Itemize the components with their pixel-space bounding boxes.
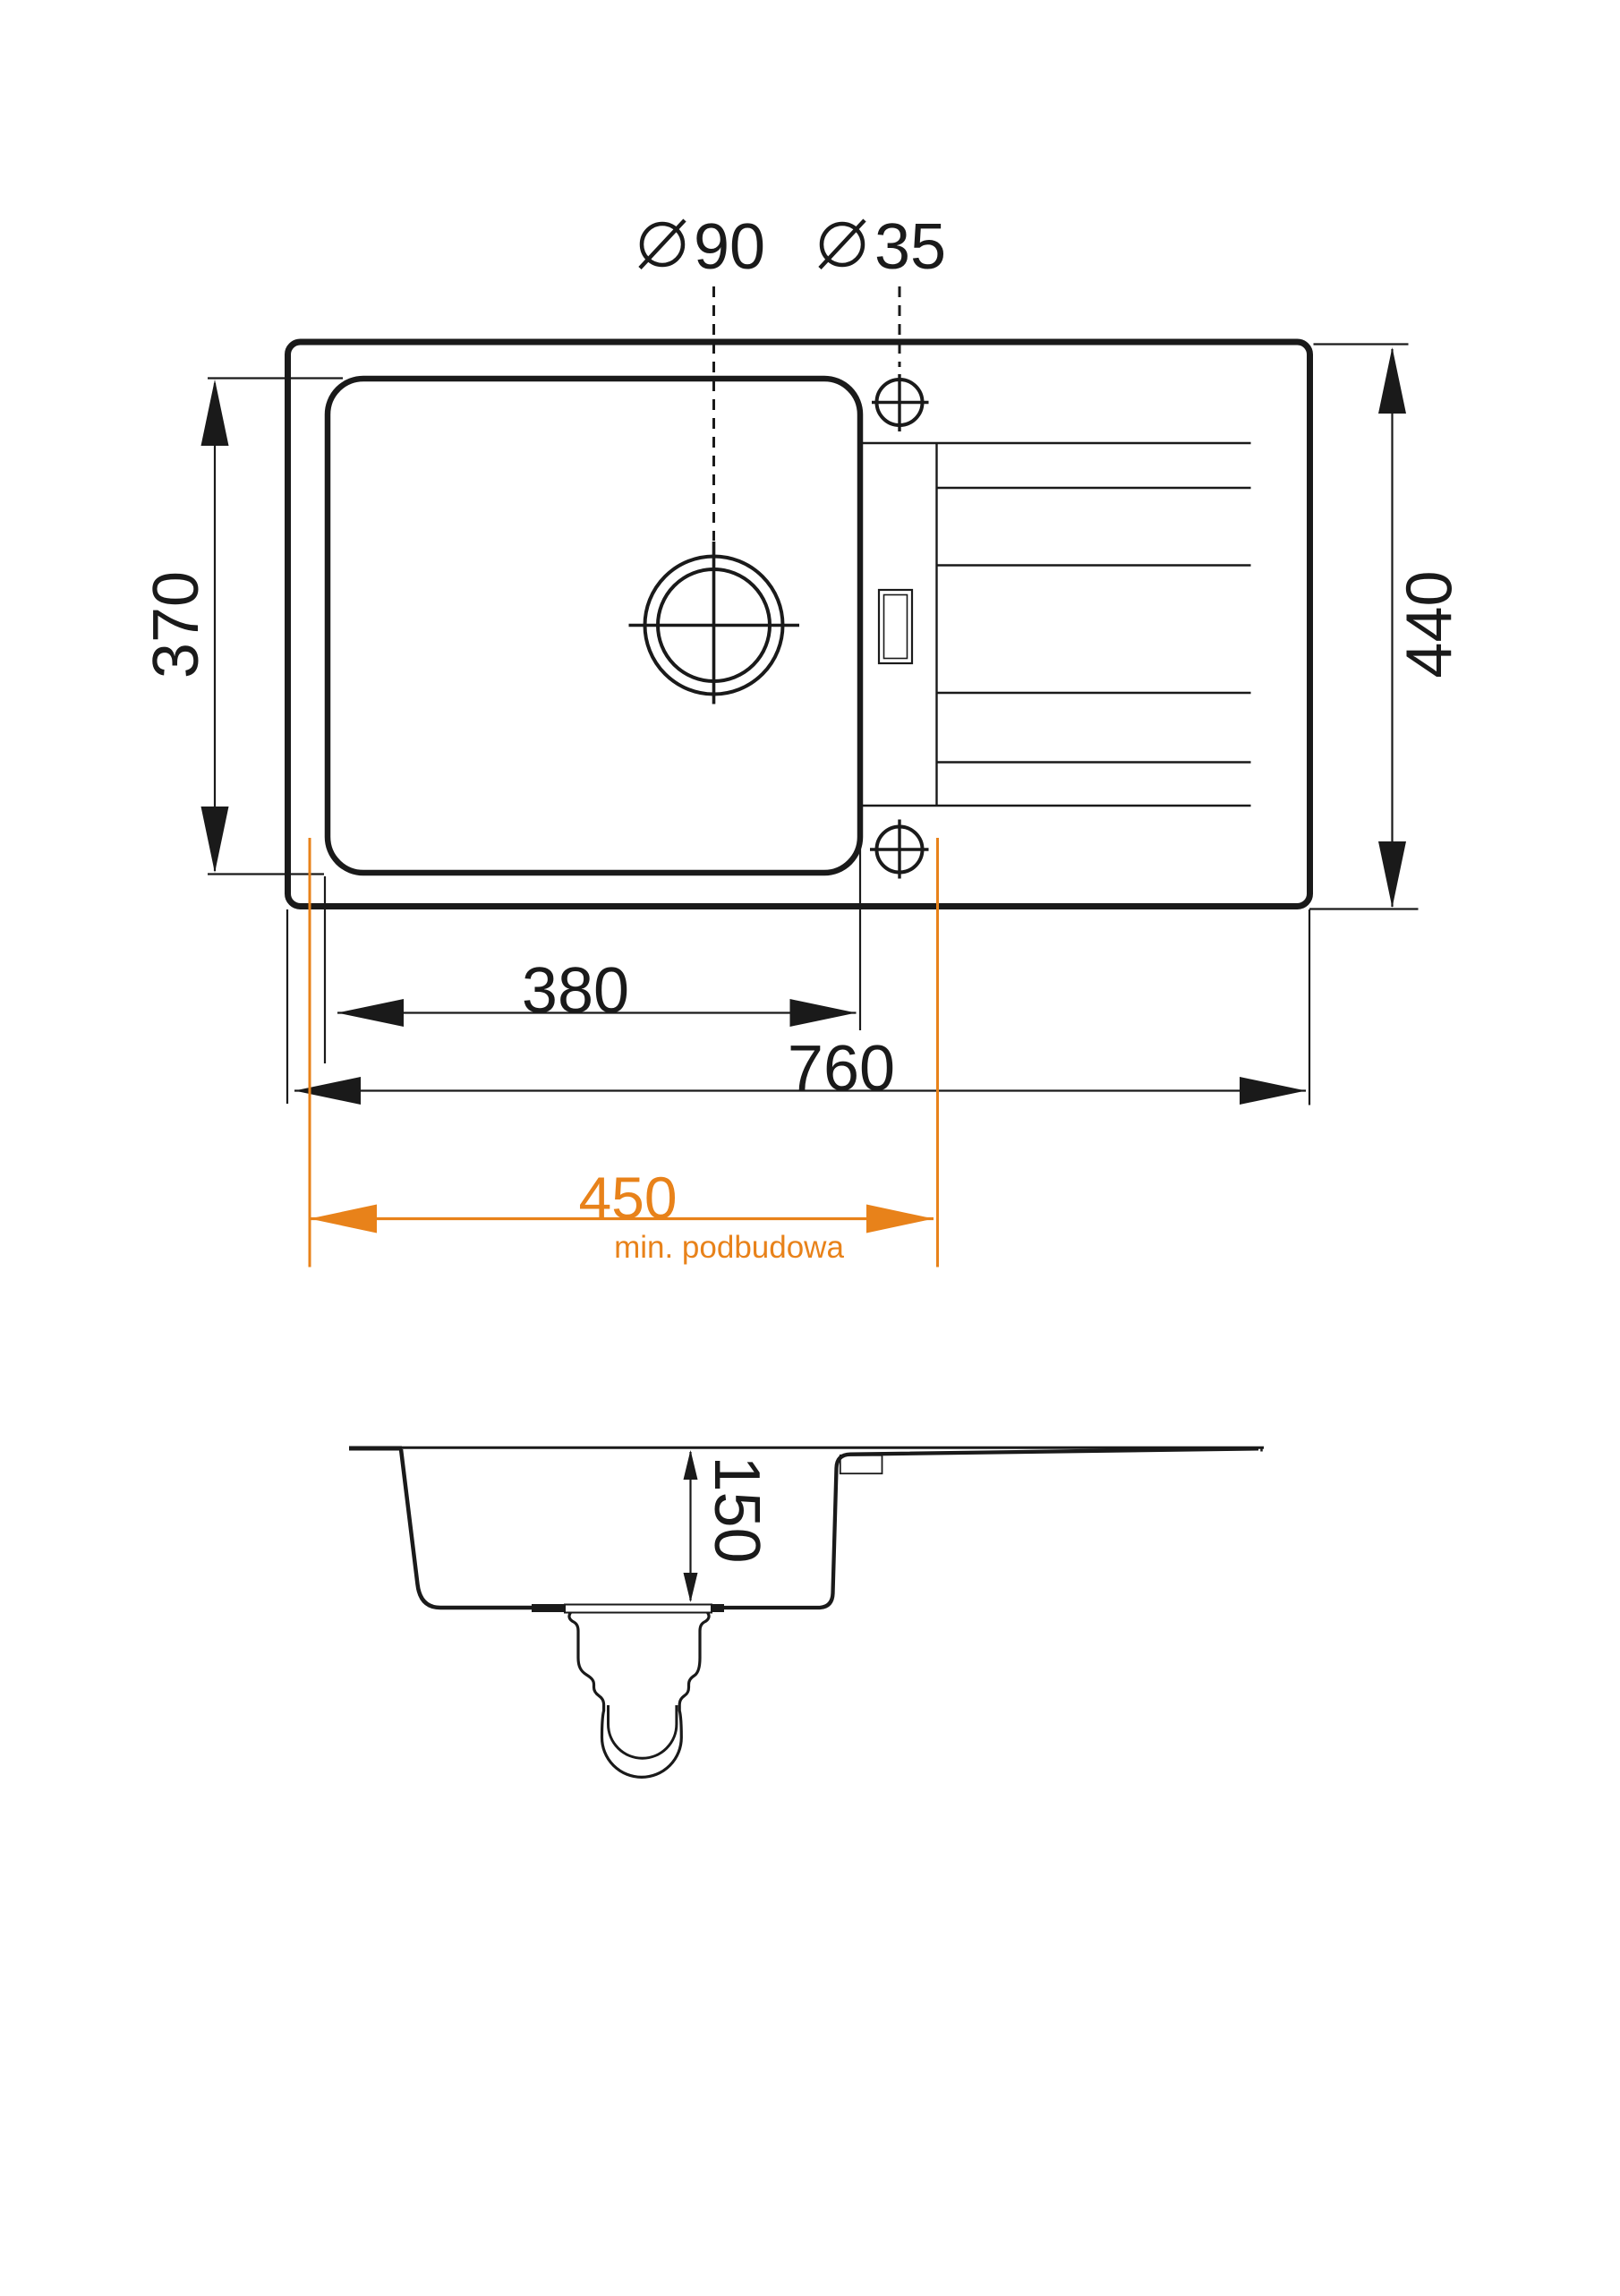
- svg-text:150: 150: [701, 1455, 772, 1563]
- svg-text:450: 450: [578, 1165, 677, 1231]
- svg-text:35: 35: [874, 211, 946, 283]
- svg-text:380: 380: [522, 955, 629, 1027]
- svg-text:min. podbudowa: min. podbudowa: [614, 1230, 844, 1265]
- svg-text:90: 90: [694, 211, 765, 283]
- svg-text:440: 440: [1394, 570, 1466, 678]
- svg-text:760: 760: [788, 1033, 895, 1105]
- svg-text:370: 370: [141, 571, 212, 679]
